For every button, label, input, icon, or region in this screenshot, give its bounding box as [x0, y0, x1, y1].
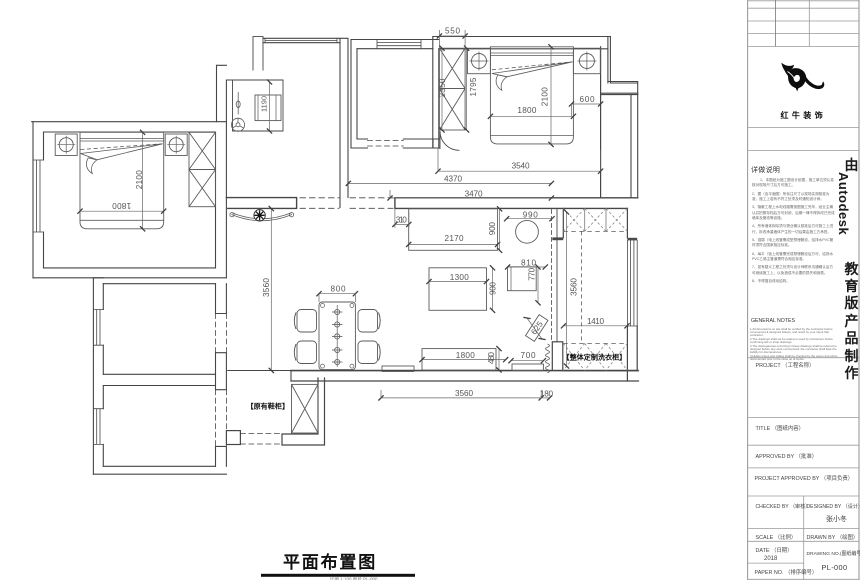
svg-text:310: 310 [396, 215, 407, 224]
svg-text:625: 625 [529, 319, 545, 336]
svg-text:990: 990 [523, 211, 538, 220]
svg-text:3560: 3560 [262, 278, 271, 297]
svg-text:2350: 2350 [438, 78, 447, 97]
svg-text:3470: 3470 [465, 189, 483, 198]
svg-text:【整体定制洗衣柜】: 【整体定制洗衣柜】 [563, 352, 627, 361]
svg-text:1800: 1800 [456, 351, 475, 360]
svg-text:900: 900 [488, 222, 497, 235]
svg-text:4370: 4370 [444, 175, 462, 184]
svg-text:2170: 2170 [445, 234, 464, 243]
svg-text:2100: 2100 [541, 87, 550, 106]
svg-text:1795: 1795 [469, 77, 478, 96]
svg-text:3540: 3540 [512, 162, 530, 171]
svg-text:900: 900 [488, 282, 497, 295]
svg-text:550: 550 [445, 27, 460, 36]
svg-text:2100: 2100 [135, 170, 144, 189]
svg-text:180: 180 [540, 389, 553, 398]
svg-text:3560: 3560 [569, 278, 578, 296]
svg-text:1800: 1800 [112, 201, 131, 210]
svg-text:1300: 1300 [450, 273, 469, 282]
svg-text:红牛装饰: 红牛装饰 [781, 110, 827, 120]
svg-text:平面布置图: 平面布置图 [283, 552, 377, 572]
svg-text:810: 810 [521, 259, 536, 268]
svg-text:480: 480 [487, 352, 496, 364]
svg-text:比例 1:100 图号 PL-000: 比例 1:100 图号 PL-000 [330, 576, 378, 580]
svg-text:【原有鞋柜】: 【原有鞋柜】 [247, 401, 290, 410]
svg-text:1800: 1800 [517, 106, 536, 115]
svg-text:1190: 1190 [259, 96, 268, 112]
svg-text:800: 800 [331, 285, 346, 294]
svg-text:770: 770 [528, 267, 537, 280]
svg-text:3560: 3560 [455, 389, 473, 398]
svg-text:600: 600 [580, 95, 595, 104]
svg-text:1410: 1410 [587, 317, 604, 326]
svg-text:700: 700 [521, 351, 536, 360]
